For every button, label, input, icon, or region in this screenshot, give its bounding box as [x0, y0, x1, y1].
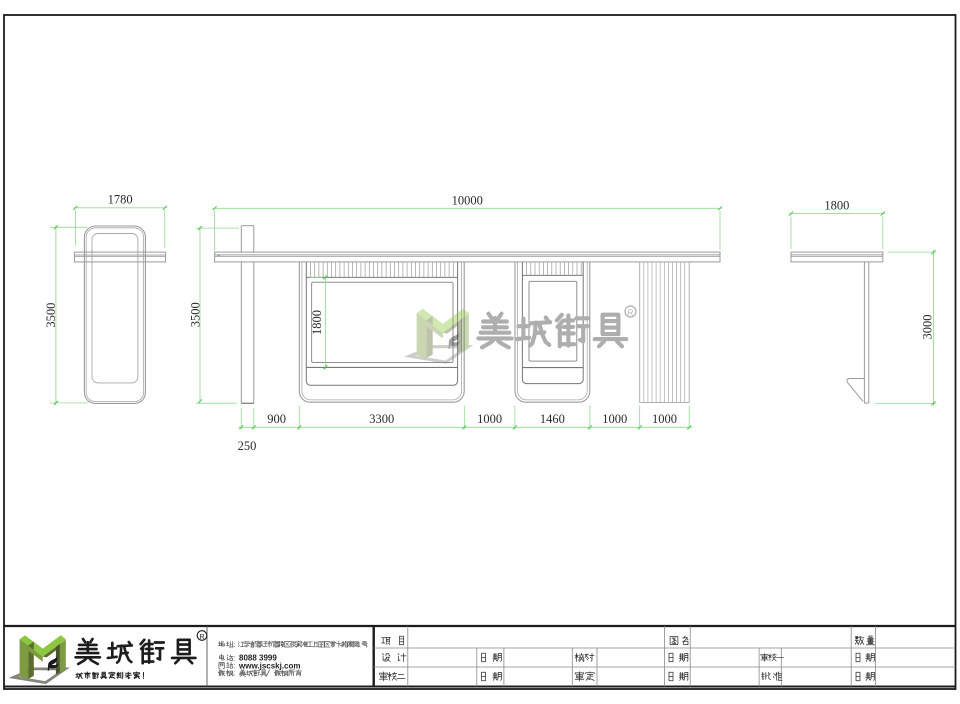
svg-text:3000: 3000	[920, 315, 934, 340]
svg-text:1780: 1780	[108, 193, 133, 207]
svg-text:900: 900	[267, 412, 286, 426]
svg-text:www.jscskj.com: www.jscskj.com	[238, 661, 301, 670]
svg-text:3500: 3500	[44, 303, 58, 328]
svg-text::: :	[234, 656, 236, 663]
svg-text:3300: 3300	[369, 412, 394, 426]
svg-text:1460: 1460	[540, 412, 565, 426]
svg-text::: :	[234, 642, 236, 649]
svg-text:R: R	[628, 309, 634, 318]
svg-text::: :	[234, 663, 236, 670]
svg-text:1800: 1800	[824, 198, 849, 212]
svg-text:3500: 3500	[188, 302, 202, 327]
svg-text:1800: 1800	[310, 310, 324, 335]
svg-text:R: R	[199, 632, 204, 641]
svg-text:1000: 1000	[652, 412, 677, 426]
svg-text::: :	[234, 671, 236, 678]
svg-text:250: 250	[238, 439, 257, 453]
svg-text:10000: 10000	[452, 193, 483, 207]
svg-text:1000: 1000	[477, 412, 502, 426]
svg-text:1000: 1000	[602, 412, 627, 426]
svg-text:1: 1	[357, 642, 361, 649]
